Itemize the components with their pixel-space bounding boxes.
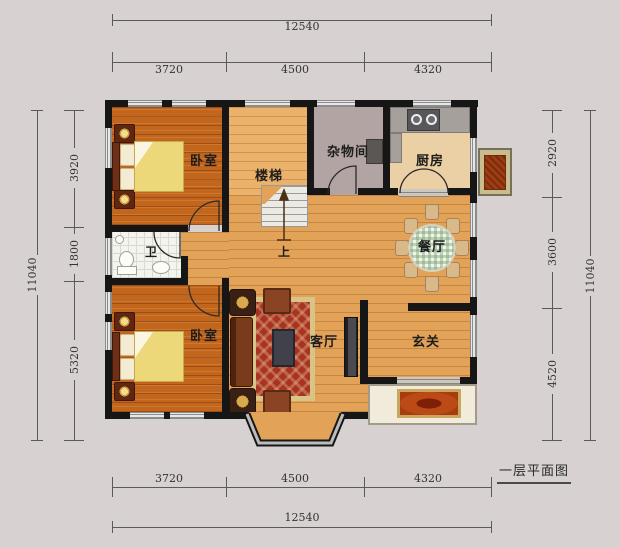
dim-bottom-seg-0: 3720 <box>144 473 194 485</box>
dim-top-total: 12540 <box>272 21 332 33</box>
dim-tick <box>491 477 492 497</box>
dim-left-seg-0: 3920 <box>69 148 81 188</box>
dim-line <box>112 527 492 528</box>
dim-top-seg-2: 4320 <box>403 64 453 76</box>
room-label-entry: 玄关 <box>404 336 448 350</box>
dim-tick <box>226 477 227 497</box>
door-arc <box>400 169 424 193</box>
dim-tick <box>542 440 562 441</box>
room-label-bedroom-top: 卧室 <box>177 155 231 169</box>
room-label-stairs: 楼梯 <box>242 170 296 184</box>
dim-tick <box>64 110 84 111</box>
dim-tick <box>112 521 113 533</box>
dim-tick <box>64 281 84 282</box>
floor-plan-canvas: 卧室 楼梯 杂物间 厨房 卫 餐厅 上 卧室 客厅 玄关 12540 3720 … <box>0 0 620 548</box>
dim-tick <box>542 197 562 198</box>
dim-tick <box>31 110 43 111</box>
dim-tick <box>226 52 227 72</box>
dim-right-total: 11040 <box>585 256 597 296</box>
dim-tick <box>491 521 492 533</box>
dim-bottom-seg-2: 4320 <box>403 473 453 485</box>
room-label-bath: 卫 <box>138 245 164 259</box>
stairs-up-arrow <box>277 190 291 240</box>
dim-tick <box>491 14 492 26</box>
dim-tick <box>112 477 113 497</box>
stairs-up-label: 上 <box>276 245 292 259</box>
dim-tick <box>364 477 365 497</box>
dim-tick <box>584 110 596 111</box>
door-arc <box>424 169 448 193</box>
door-arcs <box>154 166 448 316</box>
dim-right-seg-1: 3600 <box>547 232 559 272</box>
dim-left-total: 11040 <box>27 255 39 295</box>
dim-tick <box>584 440 596 441</box>
room-label-bedroom-bottom: 卧室 <box>177 330 231 344</box>
dim-tick <box>542 110 562 111</box>
dim-tick <box>31 440 43 441</box>
dim-left-seg-1: 1800 <box>69 234 81 274</box>
room-label-dining: 餐厅 <box>410 241 454 255</box>
dim-tick <box>112 14 113 26</box>
dim-tick <box>542 308 562 309</box>
door-arc <box>189 201 219 231</box>
dim-tick <box>491 52 492 72</box>
room-label-storage: 杂物间 <box>311 146 385 160</box>
dim-tick <box>112 52 113 72</box>
dim-tick <box>64 227 84 228</box>
dim-top-seg-0: 3720 <box>144 64 194 76</box>
dim-tick <box>364 52 365 72</box>
door-arc <box>328 166 356 194</box>
dim-bottom-total: 12540 <box>272 512 332 524</box>
room-label-living: 客厅 <box>302 336 346 350</box>
dim-bottom-seg-1: 4500 <box>270 473 320 485</box>
dim-tick <box>64 440 84 441</box>
dim-left-seg-2: 5320 <box>69 340 81 380</box>
dim-top-seg-1: 4500 <box>270 64 320 76</box>
door-arc <box>189 286 219 316</box>
room-label-kitchen: 厨房 <box>403 155 457 169</box>
dim-line <box>112 487 492 488</box>
dim-right-seg-0: 2920 <box>547 133 559 173</box>
plan-title: 一层平面图 <box>497 464 571 484</box>
dim-right-seg-2: 4520 <box>547 354 559 394</box>
